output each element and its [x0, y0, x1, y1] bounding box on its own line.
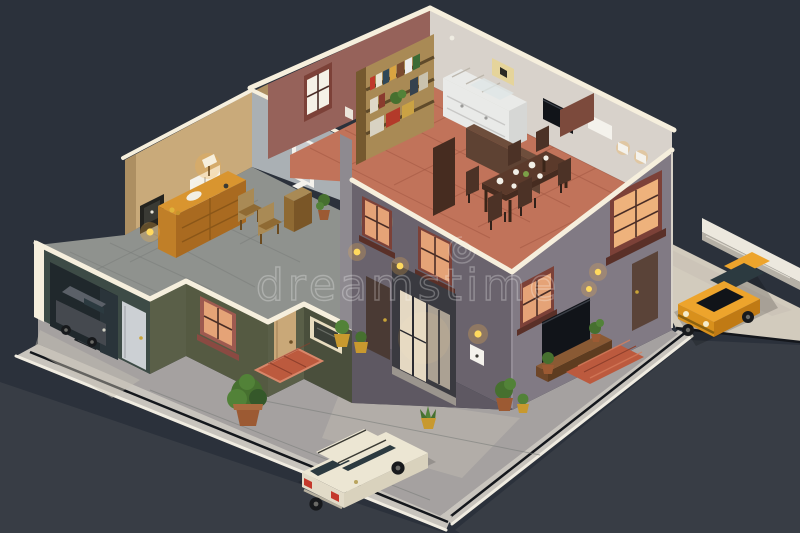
se-lamp-2 [581, 281, 597, 297]
desk-lamp [195, 153, 221, 179]
facade-lamp-3 [468, 324, 488, 344]
fuel-cap [354, 480, 358, 484]
se-lamp-1 [589, 263, 607, 281]
yellow-car-headlight-1 [683, 311, 689, 317]
desk-fruit-2 [176, 211, 180, 215]
desk-fruit-1 [169, 207, 174, 212]
door-knob [139, 336, 143, 340]
tan-door-knob [289, 340, 293, 344]
isometric-house-illustration: dreamstime [0, 0, 800, 533]
desk-item [224, 184, 229, 189]
se-door [632, 251, 658, 331]
garage-left-pillar [34, 240, 44, 322]
office-back-wall-shade [125, 154, 136, 235]
pedestrian-door [122, 301, 146, 370]
garage-car-headlight [102, 328, 105, 331]
scene-canvas: dreamstime [0, 0, 800, 533]
switch-dot [450, 36, 455, 41]
yellow-car-headlight-2 [703, 321, 709, 327]
facade-lamp-1 [348, 243, 366, 261]
corner-pot-plant-2 [354, 331, 368, 353]
dining-partition-end [433, 137, 455, 216]
watermark-text: dreamstime [256, 260, 560, 311]
desk-wall-sconce [140, 222, 160, 242]
